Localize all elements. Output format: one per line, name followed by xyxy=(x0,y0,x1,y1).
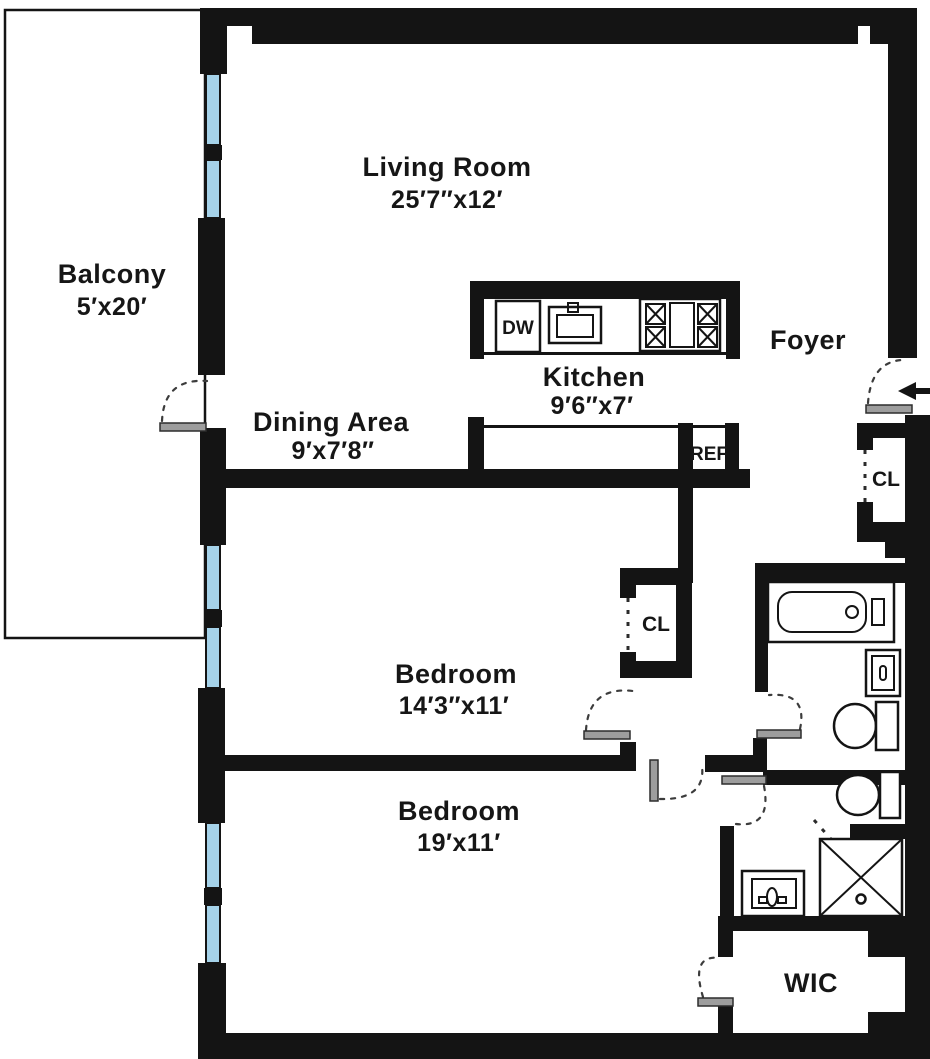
wall-segment xyxy=(470,281,740,299)
door-swing xyxy=(868,360,902,403)
dining-area-dims: 9′x7′8″ xyxy=(291,437,374,465)
toilet-bowl-icon xyxy=(834,704,876,748)
door-swing xyxy=(586,690,633,730)
wall-segment xyxy=(726,281,740,359)
bedroom1-label: Bedroom xyxy=(395,659,517,689)
door-leaf xyxy=(866,405,912,413)
window xyxy=(206,627,220,688)
wic-label: WIC xyxy=(784,968,838,998)
floor-plan: Living Room 25′7″x12′ Balcony 5′x20′ Din… xyxy=(0,0,930,1059)
door-swing xyxy=(769,695,801,729)
window xyxy=(206,905,220,963)
foyer-closet-label: CL xyxy=(872,468,900,491)
kitchen-dims: 9′6″x7′ xyxy=(550,392,633,420)
wall-segment xyxy=(252,26,858,44)
window xyxy=(206,160,220,218)
dishwasher-label: DW xyxy=(502,318,534,339)
kitchen-label: Kitchen xyxy=(543,362,646,392)
bedroom2-label: Bedroom xyxy=(398,796,520,826)
wall-segment xyxy=(468,417,484,477)
wall-segment xyxy=(200,8,227,74)
shower-drain xyxy=(857,895,866,904)
balcony-label: Balcony xyxy=(58,259,167,289)
wall-segment xyxy=(850,824,906,839)
floor-plan-canvas: Living Room 25′7″x12′ Balcony 5′x20′ Din… xyxy=(0,0,930,1059)
living-room-label: Living Room xyxy=(363,152,532,182)
toilet-tank-icon xyxy=(876,702,898,750)
wall-segment xyxy=(753,738,767,757)
door-swing xyxy=(162,381,207,421)
door-leaf xyxy=(584,731,630,739)
wall-segment xyxy=(470,281,484,359)
door-leaf xyxy=(757,730,801,738)
wall-segment xyxy=(868,928,905,957)
entry-arrow-icon xyxy=(898,382,930,400)
living-room-dims: 25′7″x12′ xyxy=(391,186,503,214)
dining-area-label: Dining Area xyxy=(253,407,410,437)
bathroom-lower-fixtures xyxy=(742,772,902,916)
wall-segment xyxy=(705,755,767,772)
toilet-bowl-icon xyxy=(837,775,879,815)
balcony-outline xyxy=(5,10,205,638)
refrigerator-label: REF xyxy=(690,444,728,465)
wall-segment xyxy=(885,542,908,558)
door-leaf xyxy=(698,998,733,1006)
toilet-tank-icon xyxy=(880,772,900,818)
bathroom-upper-fixtures xyxy=(768,582,900,750)
wall-segment xyxy=(198,1033,930,1059)
wall-segment xyxy=(905,415,930,1035)
wall-segment xyxy=(720,826,734,930)
wall-segment xyxy=(868,1012,905,1033)
wall-segment xyxy=(198,963,226,1043)
window xyxy=(206,545,220,610)
bedroom1-dims: 14′3″x11′ xyxy=(399,692,510,720)
wall-segment xyxy=(204,145,222,160)
wall-segment xyxy=(620,652,636,678)
wall-segment xyxy=(718,916,733,957)
wall-segment xyxy=(200,8,917,26)
door-swing xyxy=(736,786,765,824)
wall-segment xyxy=(620,568,636,598)
wall-segment xyxy=(204,888,222,905)
door-leaf xyxy=(722,776,766,784)
wall-segment xyxy=(204,610,222,627)
foyer-label: Foyer xyxy=(770,325,846,355)
bedroom-closet-label: CL xyxy=(642,613,670,636)
wall-segment xyxy=(718,1005,733,1033)
wall-segment xyxy=(755,563,908,583)
wall-segment xyxy=(857,423,873,450)
balcony-dims: 5′x20′ xyxy=(77,293,148,321)
window xyxy=(206,823,220,888)
door-leaf xyxy=(160,423,206,431)
wall-segment xyxy=(857,522,908,542)
wall-segment xyxy=(200,755,636,771)
wall-segment xyxy=(198,218,225,375)
door-leaf xyxy=(650,760,658,801)
bedroom2-dims: 19′x11′ xyxy=(417,829,501,857)
wall-segment xyxy=(620,742,636,771)
wall-segment xyxy=(888,8,917,358)
counter-edge xyxy=(484,425,726,428)
wall-segment xyxy=(755,583,768,692)
door-swing xyxy=(660,766,702,799)
window xyxy=(206,74,220,145)
door-swing xyxy=(699,958,720,997)
